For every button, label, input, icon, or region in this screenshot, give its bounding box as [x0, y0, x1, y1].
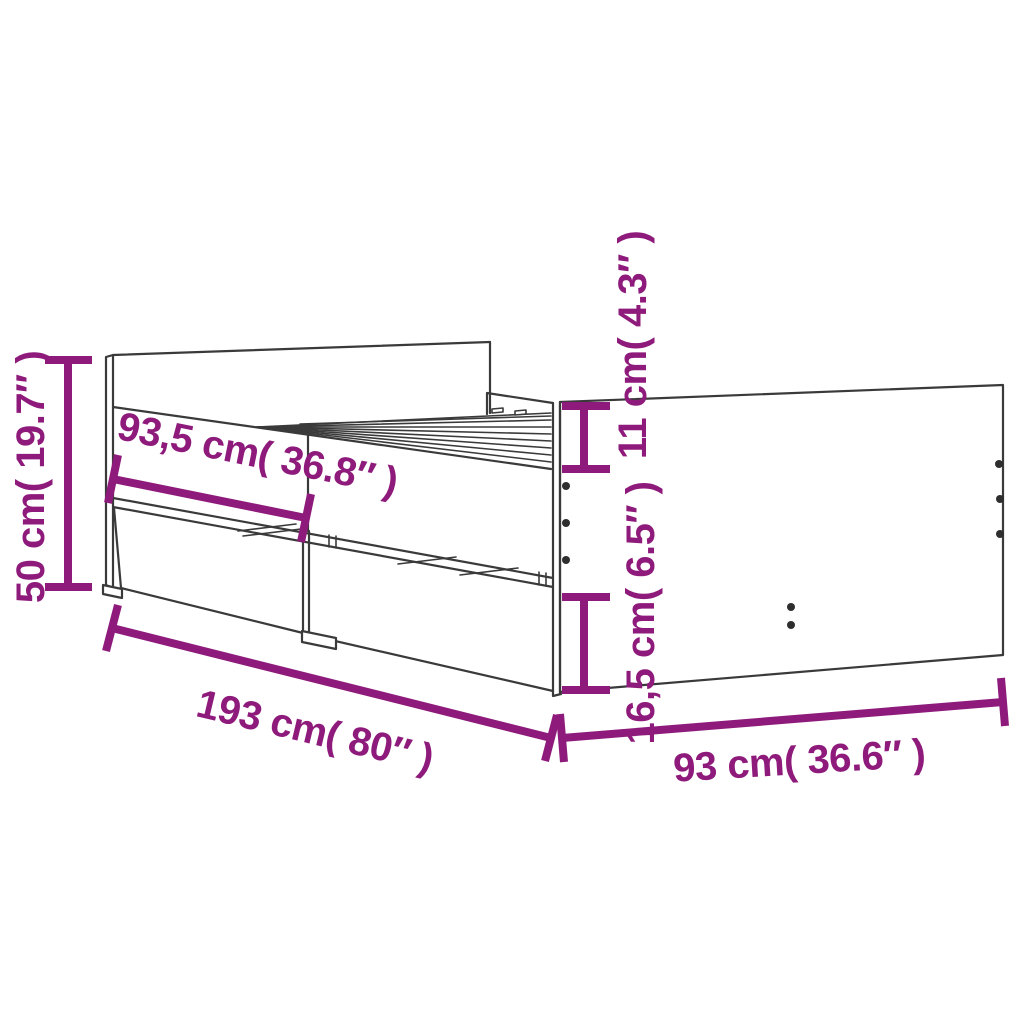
bed-line-art — [103, 342, 1003, 696]
overall-height-label: 50 cm( 19.7″ ) — [9, 351, 53, 603]
top-rail-height-label: 11 cm( 4.3″ ) — [611, 231, 655, 459]
dimension-cap — [560, 714, 564, 762]
screw-hole — [562, 519, 570, 527]
screw-hole — [787, 603, 795, 611]
bed-frame-dimension-diagram: 50 cm( 19.7″ ) 93,5 cm( 36.8″ ) 11 cm( 4… — [0, 0, 1024, 1024]
diagram-canvas: 50 cm( 19.7″ ) 93,5 cm( 36.8″ ) 11 cm( 4… — [0, 0, 1024, 1024]
dimension-cap — [1001, 678, 1005, 726]
screw-hole — [996, 530, 1004, 538]
dimension-cap — [108, 455, 118, 503]
screw-hole — [562, 482, 570, 490]
screw-hole — [562, 556, 570, 564]
screw-hole — [995, 460, 1003, 468]
headboard-top-edge — [113, 342, 490, 355]
drawer-left-edge — [114, 508, 121, 588]
footboard-edge-strip — [553, 402, 561, 696]
rail-bottom-edge — [113, 498, 553, 578]
center-foot — [302, 631, 336, 649]
slat-end-tab — [515, 410, 526, 415]
screw-hole — [787, 621, 795, 629]
slat-end-tab — [492, 408, 503, 413]
overall-width-label: 93 cm( 36.6″ ) — [672, 731, 927, 790]
drawer-top-edge — [113, 507, 553, 587]
drawer-divider — [303, 531, 309, 634]
drawer-front-height-label: 16,5 cm( 6.5″ ) — [619, 482, 663, 745]
screw-hole — [996, 495, 1004, 503]
headboard-foot — [103, 585, 122, 598]
